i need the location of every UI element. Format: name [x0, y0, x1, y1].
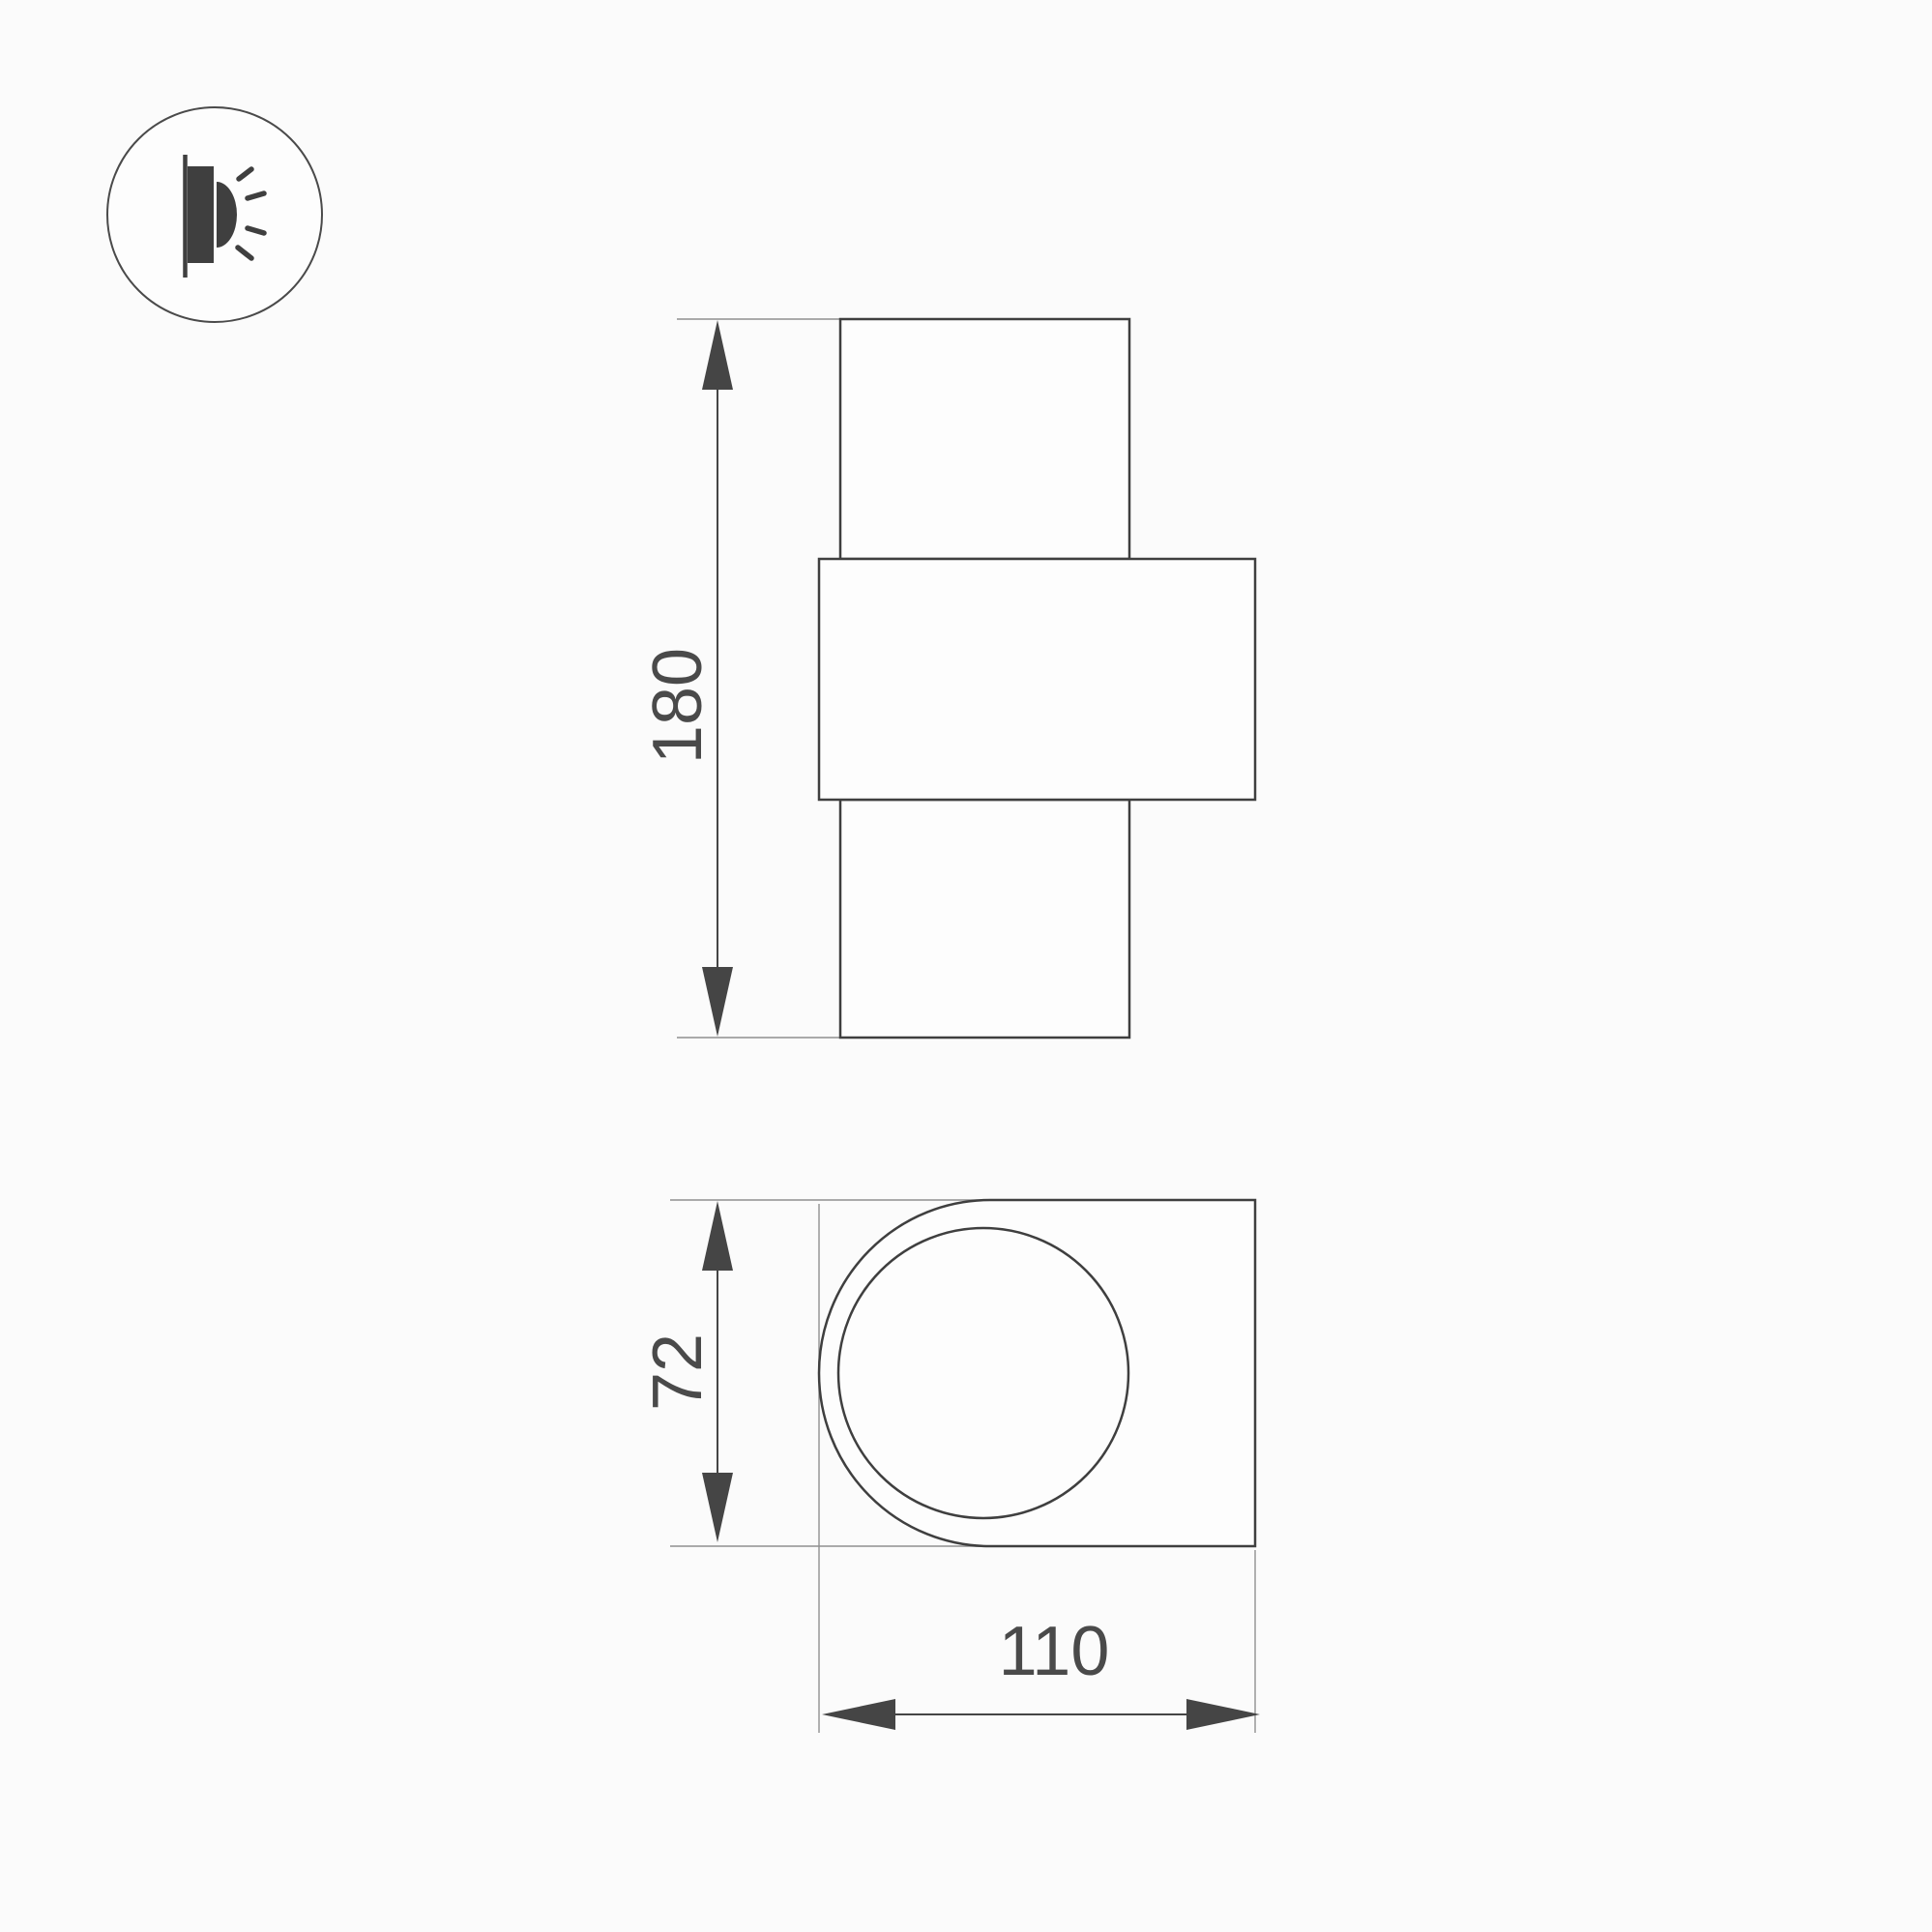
front-view-wall-bracket: [819, 559, 1255, 800]
depth-arrow-down: [702, 1473, 733, 1542]
top-view-outline: [819, 1200, 1255, 1546]
technical-drawing-canvas: 180 72 110: [0, 0, 1932, 1932]
width-dimension-label: 110: [999, 1613, 1110, 1690]
width-arrow-left: [822, 1699, 895, 1730]
height-dimension: 180: [639, 320, 733, 1037]
depth-arrow-up: [702, 1201, 733, 1271]
front-view: 180: [639, 319, 1255, 1038]
width-arrow-right: [1186, 1699, 1260, 1730]
height-arrow-up: [702, 320, 733, 390]
front-view-bottom-cylinder: [840, 800, 1129, 1038]
height-dimension-label: 180: [639, 648, 717, 764]
width-dimension: 110: [822, 1613, 1260, 1730]
height-arrow-down: [702, 967, 733, 1037]
icon-circle-outline: [107, 107, 322, 322]
depth-dimension: 72: [639, 1201, 733, 1542]
wall-lamp-icon: [107, 107, 322, 322]
icon-lamp-body: [188, 166, 214, 263]
depth-dimension-label: 72: [639, 1333, 717, 1411]
top-view: 72 110: [639, 1200, 1260, 1733]
front-view-top-cylinder: [840, 319, 1129, 559]
